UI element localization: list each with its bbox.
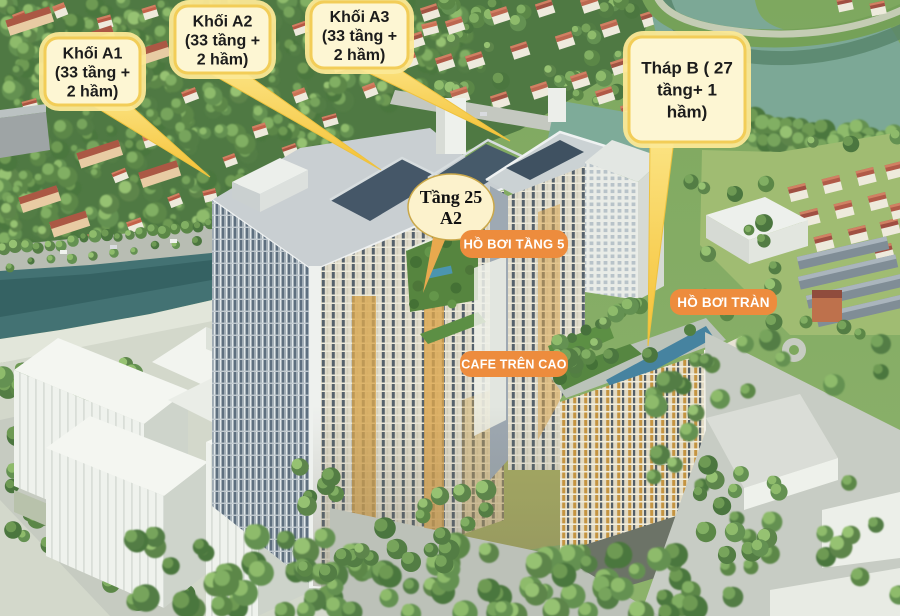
svg-text:(33 tầng +: (33 tầng + — [322, 28, 397, 45]
svg-text:HỒ BƠI TẦNG 5: HỒ BƠI TẦNG 5 — [463, 237, 564, 252]
svg-text:tầng+ 1: tầng+ 1 — [657, 81, 717, 100]
svg-text:Tầng 25: Tầng 25 — [420, 187, 483, 207]
svg-text:Khối A2: Khối A2 — [193, 13, 253, 30]
svg-text:Khối A1: Khối A1 — [63, 45, 123, 62]
svg-text:Tháp B ( 27: Tháp B ( 27 — [641, 59, 733, 78]
svg-text:2 hầm): 2 hầm) — [197, 51, 249, 68]
svg-text:2 hầm): 2 hầm) — [334, 47, 386, 64]
svg-text:Khối A3: Khối A3 — [330, 9, 390, 26]
svg-text:hầm): hầm) — [667, 103, 708, 122]
svg-text:(33 tầng +: (33 tầng + — [55, 64, 130, 81]
svg-text:(33 tầng +: (33 tầng + — [185, 32, 260, 49]
svg-text:2 hầm): 2 hầm) — [67, 83, 119, 100]
svg-text:A2: A2 — [440, 208, 462, 228]
svg-text:HỒ BƠI TRÀN: HỒ BƠI TRÀN — [677, 295, 769, 310]
svg-text:CAFE TRÊN CAO: CAFE TRÊN CAO — [461, 357, 566, 372]
